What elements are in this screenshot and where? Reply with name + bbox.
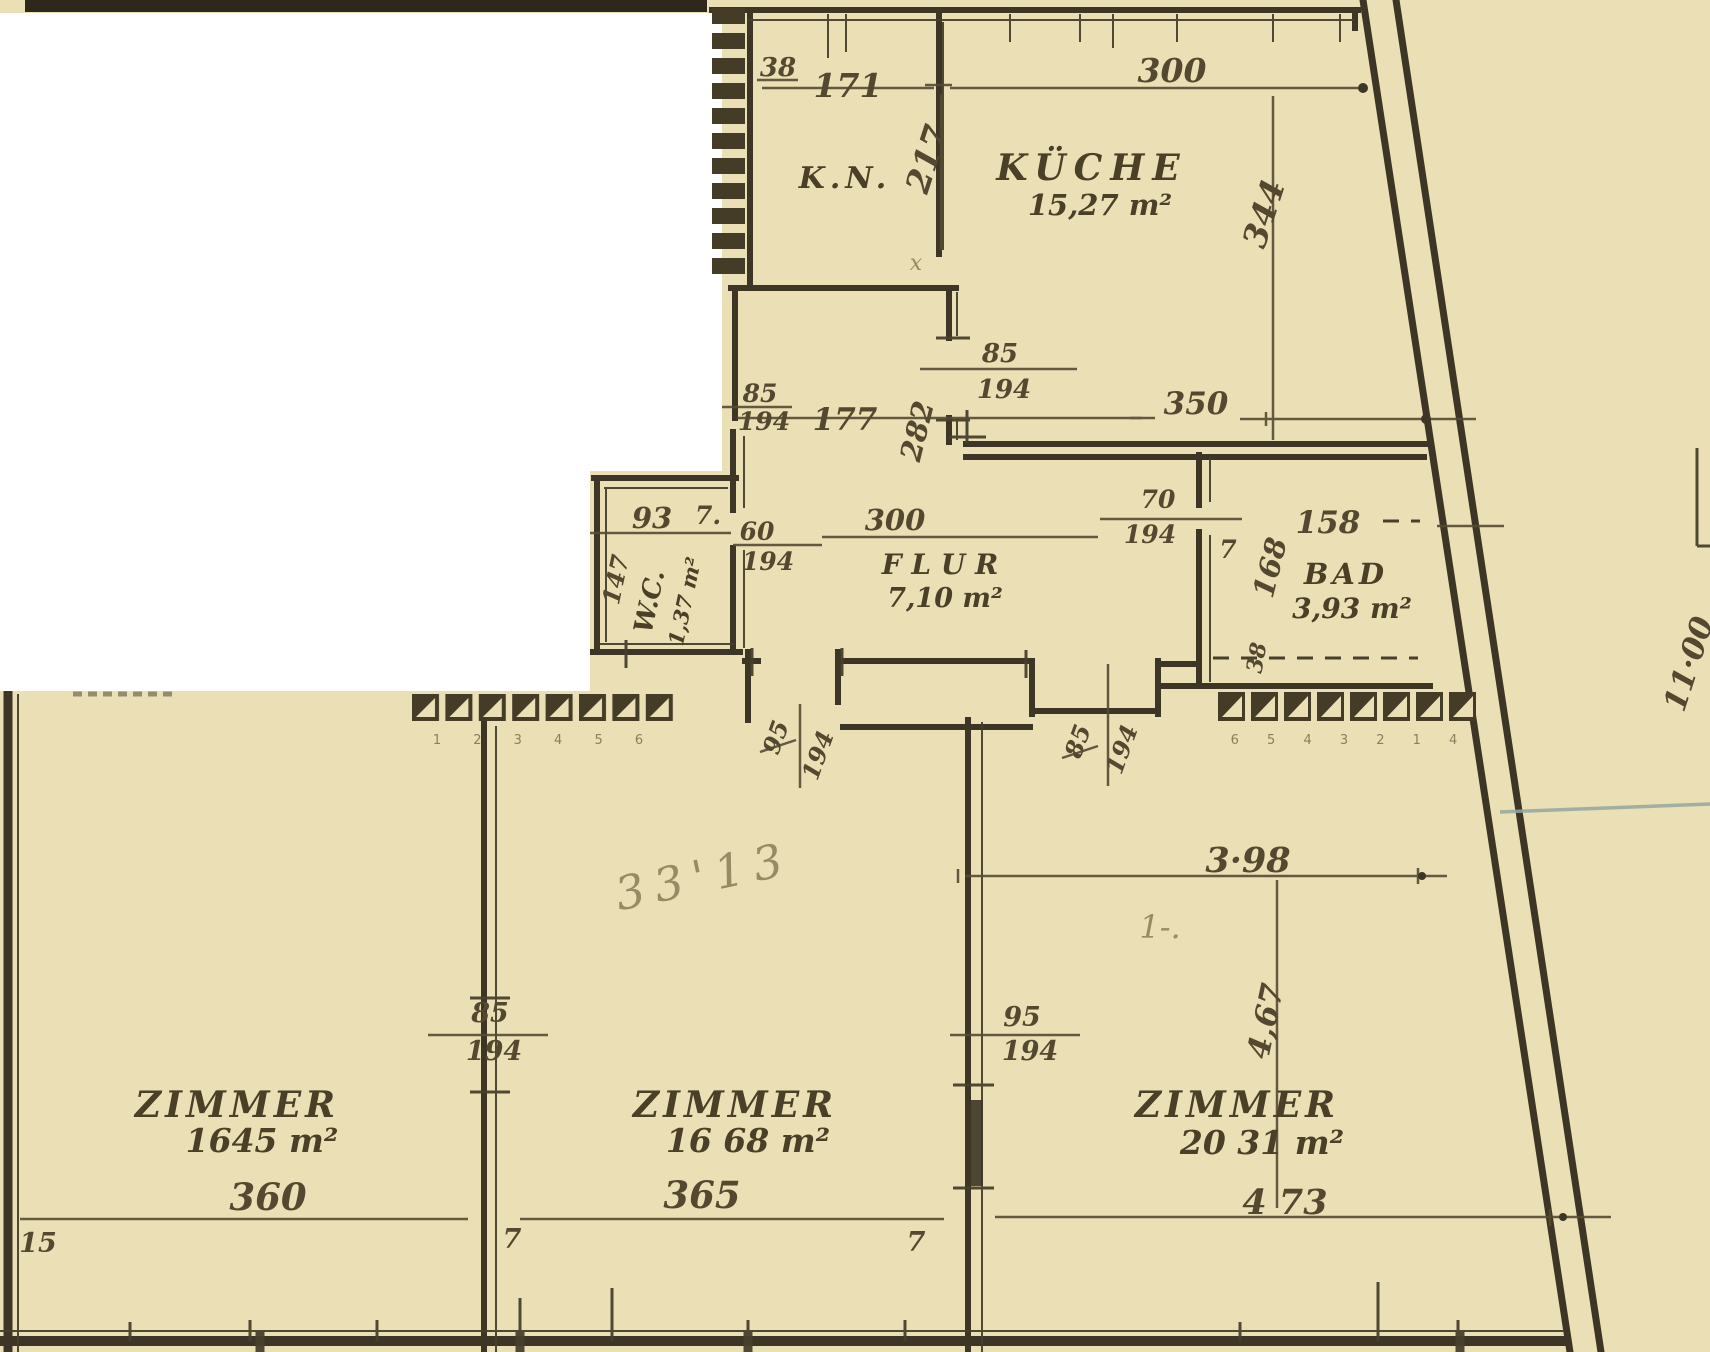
- dim-z1-width: 360: [229, 1175, 306, 1219]
- hatched-wall-strip: [712, 8, 748, 274]
- dim-bad-sep: 7: [1219, 535, 1237, 564]
- room-area-zimmer3: 20 31 m²: [1179, 1123, 1344, 1162]
- dim-z3-width: 4 73: [1242, 1182, 1327, 1223]
- window-row-left-digits: 1 2 3 4 5 6: [433, 733, 657, 748]
- scan-cutout-upper: [0, 13, 722, 471]
- dim-flur-width: 300: [865, 503, 926, 537]
- scan-cutout-lower: [0, 471, 590, 691]
- room-label-kn: K.N.: [798, 161, 891, 196]
- room-label-flur: F L U R: [881, 548, 999, 581]
- room-area-kueche: 15,27 m²: [1028, 188, 1172, 222]
- room-label-zimmer2: ZIMMER: [631, 1084, 837, 1126]
- dim-z1-offset: 15: [19, 1228, 57, 1259]
- dim-z2-width: 365: [663, 1173, 740, 1217]
- door-kueche-w: 85: [981, 339, 1018, 369]
- dim-z3-upper-width: 3·98: [1205, 840, 1290, 881]
- pencil-mark: 1-.: [1139, 908, 1180, 946]
- dim-dot-2: [1421, 414, 1431, 424]
- window-row-right: [1218, 692, 1482, 723]
- room-label-bad: BAD: [1303, 557, 1388, 591]
- dim-kueche-south: 350: [1164, 386, 1229, 422]
- dim-dot-3: [1418, 872, 1426, 880]
- floor-plan-canvas: K.N. KÜCHE 15,27 m² F L U R 7,10 m² W.C.…: [0, 0, 1710, 1352]
- dim-dot-1: [1358, 83, 1368, 93]
- room-label-zimmer1: ZIMMER: [133, 1084, 339, 1126]
- dim-kn-width: 171: [814, 66, 883, 105]
- room-label-kueche: KÜCHE: [995, 146, 1188, 189]
- dim-bad-width: 158: [1296, 505, 1361, 541]
- room-area-zimmer2: 16 68 m²: [666, 1121, 830, 1160]
- dim-wc-offset: 93: [632, 501, 672, 535]
- door-z23-w: 95: [1003, 1002, 1041, 1033]
- door-bad-h: 194: [1124, 520, 1176, 549]
- door-bad-w: 70: [1141, 485, 1176, 514]
- zimmer2-3-door-leaf: [966, 1100, 983, 1186]
- door-closet-w: 85: [742, 379, 778, 408]
- room-area-bad: 3,93 m²: [1292, 592, 1412, 625]
- door-z12-w: 85: [470, 998, 509, 1029]
- window-row-right-digits: 6 5 4 3 2 1 4: [1231, 733, 1470, 748]
- room-area-flur: 7,10 m²: [887, 583, 1003, 614]
- scanned-floor-plan: K.N. KÜCHE 15,27 m² F L U R 7,10 m² W.C.…: [0, 0, 1710, 1352]
- door-closet-h: 194: [738, 407, 790, 436]
- door-z23-h: 194: [1002, 1036, 1058, 1067]
- top-scan-bar: [25, 0, 707, 12]
- dim-wc-sep: 7.: [695, 501, 721, 530]
- room-label-zimmer3: ZIMMER: [1133, 1084, 1339, 1126]
- dim-closet-width: 177: [813, 402, 878, 438]
- dim-bad-offset: 38: [1242, 640, 1273, 675]
- door-wc-w: 60: [740, 517, 775, 546]
- room-area-zimmer1: 1645 m²: [186, 1121, 339, 1160]
- dim-kueche-width: 300: [1138, 51, 1207, 90]
- dim-dot-4: [1559, 1213, 1567, 1221]
- door-wc-h: 194: [742, 547, 794, 576]
- corner-mark: x: [910, 251, 923, 276]
- window-row-left: [412, 694, 678, 722]
- dim-z2-sep-left: 7: [503, 1224, 522, 1255]
- dim-kn-offset: 38: [760, 53, 796, 83]
- door-kueche-h: 194: [977, 375, 1031, 405]
- door-z12-h: 194: [466, 1036, 522, 1067]
- dim-z2-sep-right: 7: [907, 1227, 926, 1258]
